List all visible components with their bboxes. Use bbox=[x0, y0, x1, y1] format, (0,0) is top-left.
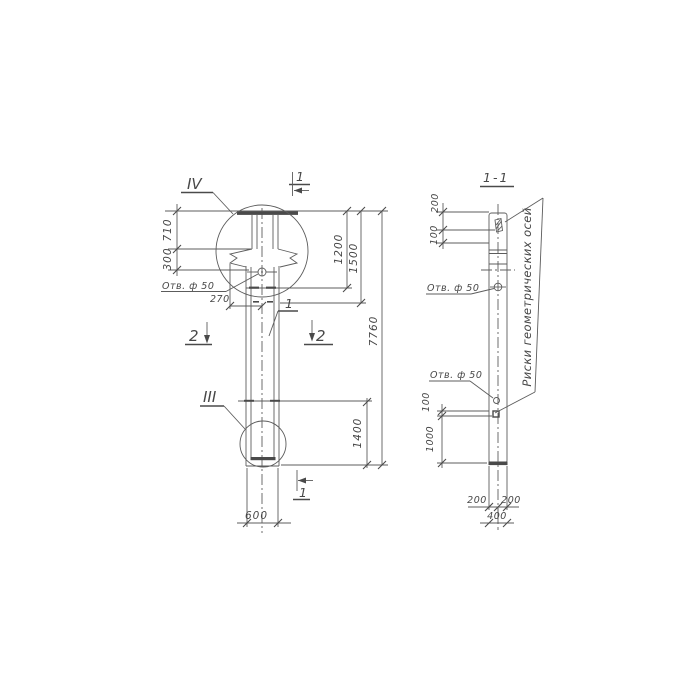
shaft-bottom-plug bbox=[251, 457, 276, 460]
section-mark-1-top: 1 bbox=[296, 169, 304, 184]
dim-100-low: 100 bbox=[421, 392, 432, 412]
dim-600: 600 bbox=[245, 510, 268, 522]
dim-300: 300 bbox=[162, 247, 174, 270]
dim-1000: 1000 bbox=[425, 426, 436, 452]
section-view-geometry: 1-1 bbox=[480, 170, 515, 530]
drawing-sheet: 710 300 1200 1500 7760 1400 270 Отв. ф 5… bbox=[0, 0, 700, 700]
dim-400: 400 bbox=[487, 511, 507, 522]
left-flange-wing bbox=[230, 249, 252, 267]
dim-270: 270 bbox=[210, 294, 230, 305]
dim-1200: 1200 bbox=[333, 234, 345, 265]
technical-drawing: 710 300 1200 1500 7760 1400 270 Отв. ф 5… bbox=[0, 0, 700, 700]
axes-note-text: Риски геометрических осей bbox=[520, 207, 534, 386]
dim-200-bottom-left: 200 bbox=[467, 495, 487, 506]
section-mark-1-bottom: 1 bbox=[299, 485, 307, 500]
dim-100-top: 100 bbox=[429, 225, 440, 245]
section-hole-label-bottom: Отв. ф 50 bbox=[430, 370, 482, 381]
right-flange-wing bbox=[278, 249, 297, 267]
dim-7760: 7760 bbox=[368, 316, 380, 347]
dim-1500: 1500 bbox=[348, 243, 360, 274]
dim-1400: 1400 bbox=[352, 418, 364, 449]
cut-mark-2-left: 2 bbox=[189, 327, 199, 345]
section-hole-label-top: Отв. ф 50 bbox=[427, 283, 479, 294]
detail-mark-IV: IV bbox=[187, 175, 203, 193]
section-hole-bottom bbox=[494, 398, 500, 404]
part-callout-1: 1 bbox=[285, 296, 293, 311]
dim-200-bottom-right: 200 bbox=[501, 495, 521, 506]
dim-710: 710 bbox=[162, 218, 174, 241]
section-view-dimensions: 200 100 Отв. ф 50 Отв. ф 50 100 1000 200… bbox=[421, 193, 521, 527]
cut-mark-2-right: 2 bbox=[316, 327, 326, 345]
hole-label: Отв. ф 50 bbox=[162, 281, 214, 292]
detail-mark-III: III bbox=[203, 388, 217, 406]
dim-200-top: 200 bbox=[430, 193, 441, 213]
section-title: 1-1 bbox=[483, 170, 509, 185]
section-bottom-plug bbox=[489, 462, 508, 466]
left-view-dimensions: 710 300 1200 1500 7760 1400 270 Отв. ф 5… bbox=[161, 204, 388, 527]
